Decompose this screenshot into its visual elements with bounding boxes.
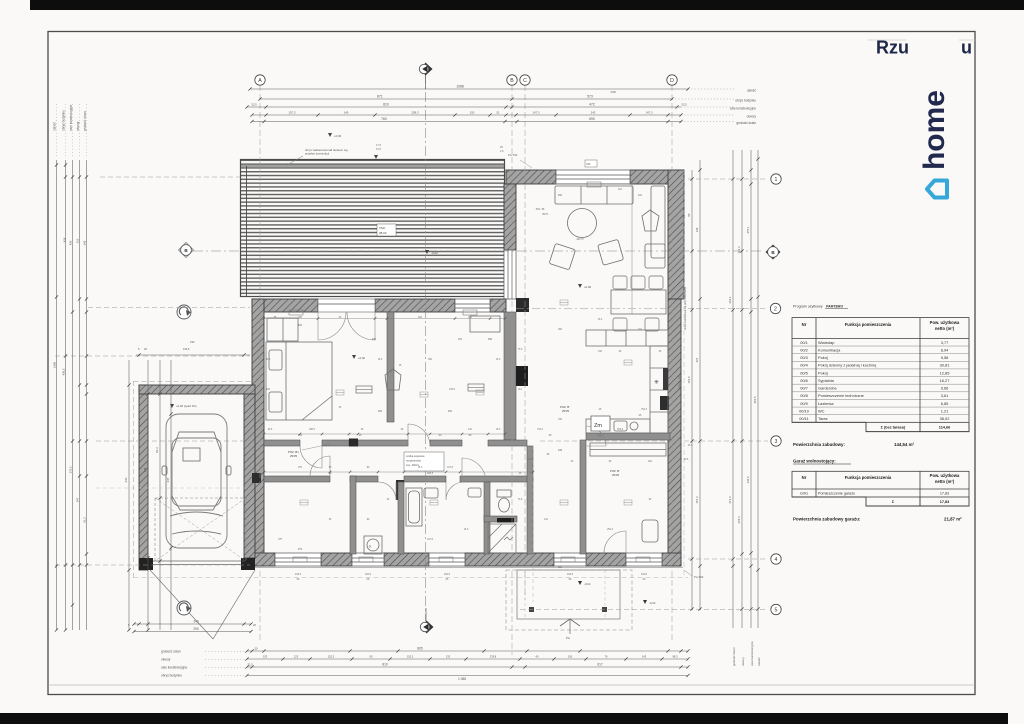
svg-text:347: 347 — [166, 477, 170, 482]
svg-text:Pokój dzienny z jadalnią i kuc: Pokój dzienny z jadalnią i kuchnią — [818, 363, 877, 368]
svg-text:home: home — [918, 90, 951, 170]
svg-text:Program użytkowy: Program użytkowy — [793, 305, 823, 309]
svg-text:16.3: 16.3 — [528, 459, 533, 461]
svg-text:40.5: 40.5 — [684, 459, 689, 461]
svg-text:37,5: 37,5 — [376, 148, 381, 151]
svg-text:obrys budynku: obrys budynku — [735, 98, 756, 102]
svg-text:123: 123 — [294, 654, 299, 658]
svg-text:na garderobę: na garderobę — [406, 460, 421, 463]
svg-text:162,5: 162,5 — [295, 573, 302, 576]
svg-text:00/8: 00/8 — [800, 393, 808, 398]
svg-text:00/5: 00/5 — [800, 370, 808, 375]
svg-text:3,77: 3,77 — [941, 340, 949, 345]
svg-text:3,61: 3,61 — [941, 393, 949, 398]
svg-text:projektu konstrukcji: projektu konstrukcji — [305, 152, 329, 156]
svg-text:162,5: 162,5 — [567, 573, 574, 576]
svg-text:20: 20 — [254, 646, 258, 650]
svg-text:9,58: 9,58 — [941, 355, 949, 360]
svg-text:00/9: 00/9 — [800, 401, 808, 406]
svg-text:95: 95 — [687, 213, 691, 217]
svg-text:otwory: otwory — [161, 658, 171, 662]
svg-text:Powierzchnia zabudowy garażu:: Powierzchnia zabudowy garażu: — [793, 517, 861, 522]
svg-text:162,5: 162,5 — [641, 573, 648, 576]
svg-text:Pokój: Pokój — [818, 370, 828, 375]
svg-text:267: 267 — [695, 357, 699, 362]
svg-text:Wiatrołap: Wiatrołap — [818, 340, 834, 345]
svg-text:Zm: Zm — [594, 423, 602, 429]
svg-text:+0,00: +0,00 — [584, 285, 592, 289]
svg-text:38,02: 38,02 — [379, 231, 387, 235]
svg-text:całość: całość — [757, 657, 761, 666]
svg-text:Σ (bez tarasu): Σ (bez tarasu) — [881, 426, 906, 430]
svg-text:17,83: 17,83 — [940, 500, 950, 504]
svg-text:całość: całość — [53, 122, 57, 131]
svg-text:00/7: 00/7 — [800, 386, 808, 391]
svg-text:00/3: 00/3 — [800, 355, 808, 360]
svg-text:+0,00: +0,00 — [334, 134, 342, 138]
svg-text:P.: P. — [369, 545, 372, 549]
svg-text:całość: całość — [747, 88, 756, 92]
svg-text:obrys budynku: obrys budynku — [161, 674, 182, 678]
svg-text:805: 805 — [417, 646, 423, 650]
svg-text:1088: 1088 — [610, 91, 616, 94]
svg-text:300: 300 — [448, 410, 453, 413]
svg-text:PARTERU: PARTERU — [826, 305, 843, 309]
svg-text:4: 4 — [775, 557, 778, 563]
svg-text:810: 810 — [383, 102, 389, 106]
svg-text:00/2: 00/2 — [800, 347, 808, 352]
svg-text:41.5: 41.5 — [266, 359, 271, 361]
svg-text:143,5: 143,5 — [746, 476, 750, 483]
svg-text:-0,02: -0,02 — [649, 601, 656, 605]
svg-text:450: 450 — [558, 194, 563, 197]
svg-text:u: u — [961, 38, 972, 58]
svg-text:375,3: 375,3 — [69, 466, 73, 473]
svg-text:152,3: 152,3 — [407, 654, 414, 658]
svg-text:grubość ścian: grubość ścian — [83, 111, 87, 131]
svg-text:00/1: 00/1 — [800, 340, 808, 345]
svg-text:347: 347 — [76, 497, 80, 502]
svg-text:00/11: 00/11 — [799, 416, 808, 421]
svg-text:WC: WC — [818, 408, 825, 413]
svg-text:152.5: 152.5 — [449, 389, 455, 391]
svg-text:00/4: 00/4 — [800, 363, 808, 368]
svg-text:100: 100 — [568, 654, 573, 658]
svg-text:16.3: 16.3 — [598, 319, 603, 321]
svg-text:21,87 m²: 21,87 m² — [944, 517, 962, 522]
svg-text:Pow. użytkowa: Pow. użytkowa — [930, 473, 960, 478]
svg-text:+0,00 (spad 1%): +0,00 (spad 1%) — [176, 404, 197, 408]
svg-text:438,5: 438,5 — [62, 368, 66, 375]
svg-text:25/35: 25/35 — [612, 473, 619, 477]
svg-text:30,81: 30,81 — [940, 363, 950, 368]
svg-text:netto (m²): netto (m²) — [935, 479, 955, 484]
svg-text:617: 617 — [597, 662, 603, 666]
svg-text:760: 760 — [381, 117, 387, 121]
svg-text:430: 430 — [124, 477, 128, 482]
svg-text:17,83: 17,83 — [940, 492, 949, 496]
svg-text:402: 402 — [298, 434, 303, 437]
svg-text:271,3: 271,3 — [728, 496, 732, 503]
svg-text:1088: 1088 — [456, 84, 464, 88]
svg-text:1 088: 1 088 — [458, 677, 466, 681]
svg-text:osie konstrukcyjne: osie konstrukcyjne — [730, 106, 756, 110]
svg-text:Pokój: Pokój — [818, 355, 828, 360]
svg-text:186.5: 186.5 — [309, 429, 315, 431]
svg-text:168: 168 — [558, 449, 563, 452]
svg-text:147,3: 147,3 — [533, 110, 540, 114]
svg-text:25/35: 25/35 — [290, 454, 297, 458]
svg-text:573: 573 — [587, 94, 593, 98]
svg-text:240: 240 — [193, 619, 199, 623]
svg-text:Powierzchnia zabudowy:: Powierzchnia zabudowy: — [793, 442, 846, 447]
svg-text:810: 810 — [382, 662, 388, 666]
svg-text:162,5: 162,5 — [365, 573, 372, 576]
svg-text:144,54 m²: 144,54 m² — [894, 442, 915, 447]
svg-text:TAR.: TAR. — [379, 226, 386, 230]
svg-text:81,3: 81,3 — [155, 447, 159, 453]
svg-text:Łazienka: Łazienka — [818, 401, 834, 406]
svg-text:Taras: Taras — [818, 416, 828, 421]
svg-text:81,3: 81,3 — [83, 517, 87, 523]
svg-text:428: 428 — [63, 237, 67, 242]
svg-text:osie konstrukcyjne: osie konstrukcyjne — [69, 105, 73, 131]
svg-text:12,85: 12,85 — [940, 370, 950, 375]
svg-text:162,5: 162,5 — [687, 376, 691, 383]
svg-text:460: 460 — [378, 410, 383, 413]
svg-text:osie konstrukcyjne: osie konstrukcyjne — [750, 641, 754, 666]
svg-text:258,3: 258,3 — [412, 110, 419, 114]
svg-text:16.3: 16.3 — [496, 359, 501, 361]
svg-text:157,3: 157,3 — [695, 496, 699, 503]
svg-text:103: 103 — [263, 654, 268, 658]
svg-text:Pomieszczenie garażu: Pomieszczenie garażu — [818, 492, 855, 496]
svg-text:690: 690 — [589, 117, 595, 121]
svg-text:375: 375 — [298, 548, 303, 551]
svg-text:Pow. użytkowa: Pow. użytkowa — [930, 320, 960, 325]
svg-text:00/6: 00/6 — [800, 378, 808, 383]
svg-text:254.3: 254.3 — [607, 529, 613, 531]
svg-text:348: 348 — [143, 467, 147, 472]
svg-text:107.8: 107.8 — [447, 467, 453, 469]
svg-text:grubość ścian: grubość ścian — [732, 647, 736, 666]
svg-text:8,94: 8,94 — [941, 347, 949, 352]
svg-text:netto (m²): netto (m²) — [935, 326, 955, 331]
svg-text:Nr: Nr — [802, 475, 807, 480]
svg-text:obrys zadaszenia wg proj. kons: obrys zadaszenia wg proj. konstrukcji — [683, 287, 687, 330]
svg-text:162,5: 162,5 — [444, 573, 451, 576]
svg-text:16,27: 16,27 — [940, 378, 950, 383]
svg-text:345: 345 — [83, 240, 87, 245]
svg-text:Pw 590: Pw 590 — [508, 153, 518, 157]
svg-text:16.3: 16.3 — [464, 529, 469, 531]
svg-text:Pomieszczenie techniczne: Pomieszczenie techniczne — [818, 393, 864, 398]
svg-text:73.5: 73.5 — [518, 349, 523, 351]
svg-text:-0,02: -0,02 — [584, 582, 591, 586]
svg-text:Komunikacja: Komunikacja — [818, 347, 841, 352]
svg-text:230: 230 — [190, 340, 195, 344]
svg-text:PSC. 88: PSC. 88 — [536, 209, 545, 211]
svg-text:otwory: otwory — [741, 657, 745, 666]
svg-text:C: C — [523, 78, 527, 84]
svg-text:754,3: 754,3 — [617, 428, 624, 431]
svg-text:G/01: G/01 — [800, 492, 808, 496]
svg-text:+0,00: +0,00 — [358, 356, 366, 360]
svg-text:131,3: 131,3 — [737, 246, 741, 253]
svg-text:403: 403 — [372, 338, 377, 341]
svg-text:Pw 590: Pw 590 — [694, 575, 704, 579]
svg-text:16.3: 16.3 — [418, 467, 423, 469]
svg-text:360: 360 — [558, 566, 563, 569]
svg-text:420: 420 — [69, 240, 73, 245]
svg-text:Nr: Nr — [802, 322, 807, 327]
svg-text:9,66: 9,66 — [941, 386, 949, 391]
svg-text:38,02: 38,02 — [940, 416, 950, 421]
svg-text:1,21: 1,21 — [941, 408, 949, 413]
svg-text:153: 153 — [470, 110, 475, 114]
svg-text:32,5: 32,5 — [681, 102, 687, 106]
svg-text:DK: DK — [587, 162, 591, 166]
svg-text:2: 2 — [774, 306, 777, 312]
svg-text:16.3: 16.3 — [688, 445, 693, 447]
svg-text:32,5: 32,5 — [247, 662, 253, 666]
svg-text:17,5: 17,5 — [376, 144, 381, 147]
svg-text:1088: 1088 — [53, 362, 57, 368]
svg-text:475,1: 475,1 — [746, 226, 750, 233]
svg-text:490: 490 — [298, 324, 303, 327]
svg-text:grubość ścian: grubość ścian — [161, 650, 181, 654]
svg-text:164,5: 164,5 — [183, 347, 190, 351]
svg-text:358: 358 — [488, 338, 493, 341]
svg-text:147,3: 147,3 — [646, 110, 653, 114]
svg-text:754.3: 754.3 — [537, 429, 543, 431]
svg-text:754.3: 754.3 — [597, 436, 603, 438]
svg-text:16.3: 16.3 — [496, 429, 501, 431]
svg-text:32,5: 32,5 — [251, 102, 257, 106]
svg-text:2,5: 2,5 — [500, 150, 504, 153]
svg-text:Garaż wolnostojący:: Garaż wolnostojący: — [793, 459, 836, 464]
svg-text:5: 5 — [775, 607, 778, 613]
svg-text:6,85: 6,85 — [941, 401, 949, 406]
svg-text:B: B — [510, 78, 514, 84]
svg-text:3: 3 — [775, 439, 778, 445]
svg-text:168,5: 168,5 — [427, 472, 434, 475]
svg-text:1: 1 — [775, 177, 778, 183]
svg-text:871: 871 — [377, 94, 383, 98]
svg-text:73.5: 73.5 — [518, 499, 523, 501]
svg-text:rynna śr. 125: rynna śr. 125 — [677, 374, 681, 390]
svg-text:310: 310 — [76, 238, 80, 243]
svg-text:152: 152 — [458, 338, 463, 341]
svg-text:140: 140 — [344, 110, 349, 114]
svg-text:Sypialnia: Sypialnia — [818, 378, 835, 383]
svg-text:98,3: 98,3 — [672, 654, 678, 658]
svg-text:110: 110 — [638, 194, 643, 197]
svg-text:Rzu: Rzu — [876, 38, 909, 58]
svg-text:129: 129 — [695, 227, 699, 232]
svg-text:D: D — [670, 78, 674, 84]
svg-text:472: 472 — [589, 102, 595, 106]
svg-text:278,3: 278,3 — [737, 516, 741, 523]
svg-text:obrys budynku: obrys budynku — [62, 110, 66, 131]
svg-text:754.3: 754.3 — [641, 409, 647, 411]
svg-text:osie konstrukcyjne: osie konstrukcyjne — [161, 666, 187, 670]
svg-text:Funkcja pomieszczenia: Funkcja pomieszczenia — [845, 322, 892, 327]
svg-text:35/75: 35/75 — [542, 214, 548, 216]
svg-text:262,1: 262,1 — [728, 296, 732, 303]
svg-text:grubość ścian: grubość ścian — [736, 121, 756, 125]
svg-text:453,5: 453,5 — [753, 396, 757, 403]
svg-text:278,8: 278,8 — [490, 654, 497, 658]
svg-text:16.3: 16.3 — [378, 359, 383, 361]
svg-text:243: 243 — [591, 110, 596, 114]
svg-text:Garderoba: Garderoba — [818, 386, 837, 391]
svg-text:szafka wnękowa: szafka wnękowa — [406, 455, 425, 458]
svg-text:otwory: otwory — [76, 121, 80, 131]
svg-text:197,3: 197,3 — [289, 110, 296, 114]
svg-text:114,66: 114,66 — [939, 426, 950, 430]
svg-text:40.5: 40.5 — [268, 429, 273, 431]
svg-text:✳: ✳ — [654, 379, 659, 386]
svg-text:133: 133 — [446, 654, 451, 658]
svg-text:00/10: 00/10 — [799, 408, 810, 413]
svg-text:-0,02: -0,02 — [431, 251, 438, 255]
svg-text:25/35: 25/35 — [562, 409, 569, 413]
svg-text:143: 143 — [642, 654, 647, 658]
svg-text:51: 51 — [496, 110, 500, 114]
svg-text:152,3: 152,3 — [328, 654, 335, 658]
svg-text:Funkcja pomieszczenia: Funkcja pomieszczenia — [845, 475, 892, 480]
svg-text:107.8: 107.8 — [427, 539, 433, 541]
svg-text:otwory: otwory — [747, 114, 757, 118]
svg-text:240.75: 240.75 — [576, 239, 584, 241]
svg-text:290: 290 — [193, 627, 199, 631]
svg-text:A: A — [258, 78, 262, 84]
